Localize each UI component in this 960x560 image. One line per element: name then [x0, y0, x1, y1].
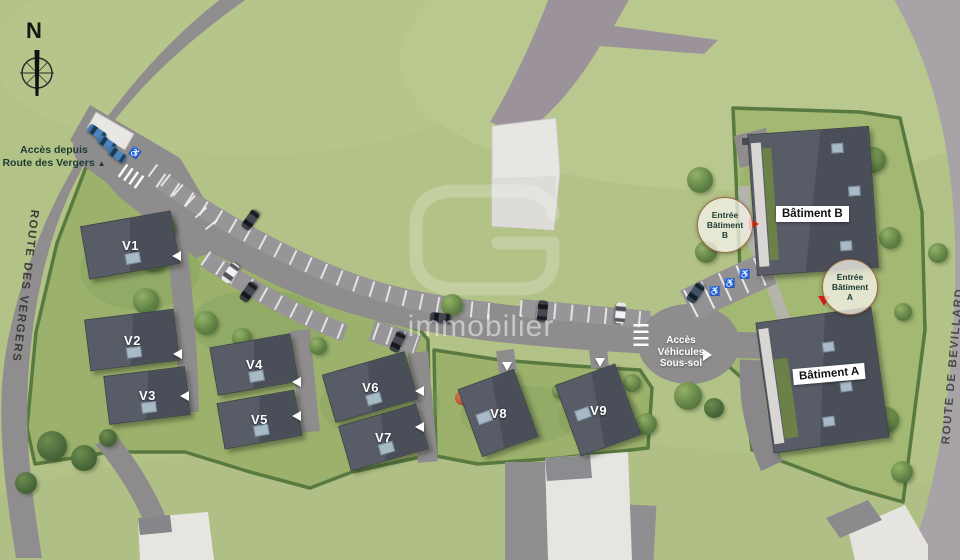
neighbor-roof-bottom-left: [138, 515, 172, 535]
access-entry-line2: Route des Vergers ▲: [0, 157, 114, 170]
entrance-badge-a: Entrée Bâtiment A: [822, 259, 878, 315]
tree: [674, 382, 702, 410]
skylight: [124, 251, 141, 264]
tree: [623, 374, 641, 392]
tree: [894, 303, 912, 321]
tree: [194, 311, 218, 335]
car: [615, 302, 627, 324]
skylight: [822, 341, 835, 353]
skylight: [840, 240, 853, 251]
skylight: [365, 392, 382, 407]
watermark-text: immobilier: [396, 310, 566, 344]
neighbor-roof-bottom-middle: [545, 455, 592, 481]
skylight: [253, 424, 270, 437]
tree: [15, 472, 37, 494]
driveway-arrow-v2-icon: [173, 349, 182, 359]
driveway-arrow-v1-icon: [172, 251, 181, 261]
wheelchair-icon: ♿: [724, 279, 735, 288]
site-plan: V1 V2 V3 V4 V5 V6 V7 V8 V9 ♿ ♿ ♿ ♿ immob…: [0, 0, 960, 560]
tree: [879, 227, 901, 249]
driveway-arrow-v3-icon: [180, 391, 189, 401]
access-entry-line1: Accès depuis: [0, 144, 114, 157]
tree: [309, 337, 327, 355]
compass-n-label: N: [26, 18, 42, 44]
batiment-b-building: [747, 126, 879, 276]
driveway-arrow-v5-icon: [292, 411, 301, 421]
tree: [37, 431, 67, 461]
villa-v3: V3: [103, 366, 190, 425]
skylight: [822, 416, 835, 428]
wheelchair-icon: ♿: [709, 287, 720, 296]
skylight: [248, 370, 265, 383]
villa-v9-label: V9: [590, 403, 607, 418]
skylight: [141, 401, 157, 414]
driveway-arrow-v4-icon: [292, 377, 301, 387]
site-plan-canvas: [0, 0, 960, 560]
entrance-badge-b: Entrée Bâtiment B: [697, 197, 753, 253]
skylight: [848, 186, 861, 197]
skylight: [475, 410, 493, 425]
tree: [928, 243, 948, 263]
tree: [891, 461, 913, 483]
driveway-bottom-middle: [505, 462, 548, 560]
villa-v1-label: V1: [122, 238, 139, 253]
driveway-arrow-v7-icon: [415, 422, 424, 432]
skylight: [574, 406, 592, 421]
roundabout-label: Accès Véhicules Sous-sol: [641, 335, 721, 370]
driveway-arrow-v8-icon: [502, 362, 512, 371]
skylight: [840, 381, 853, 393]
tree: [99, 429, 117, 447]
tree: [704, 398, 724, 418]
batiment-b-label: Bâtiment B: [776, 206, 849, 222]
skylight: [378, 441, 395, 456]
access-entry-marker-icon: ▲: [98, 159, 106, 168]
skylight: [831, 143, 844, 154]
wheelchair-icon: ♿: [739, 270, 750, 279]
skylight: [126, 346, 142, 359]
driveway-arrow-v6-icon: [415, 386, 424, 396]
tree: [71, 445, 97, 471]
tree: [687, 167, 713, 193]
driveway-arrow-v9-icon: [595, 358, 605, 367]
access-entry-label: Accès depuis Route des Vergers ▲: [0, 144, 114, 170]
villa-v2: V2: [84, 309, 180, 372]
